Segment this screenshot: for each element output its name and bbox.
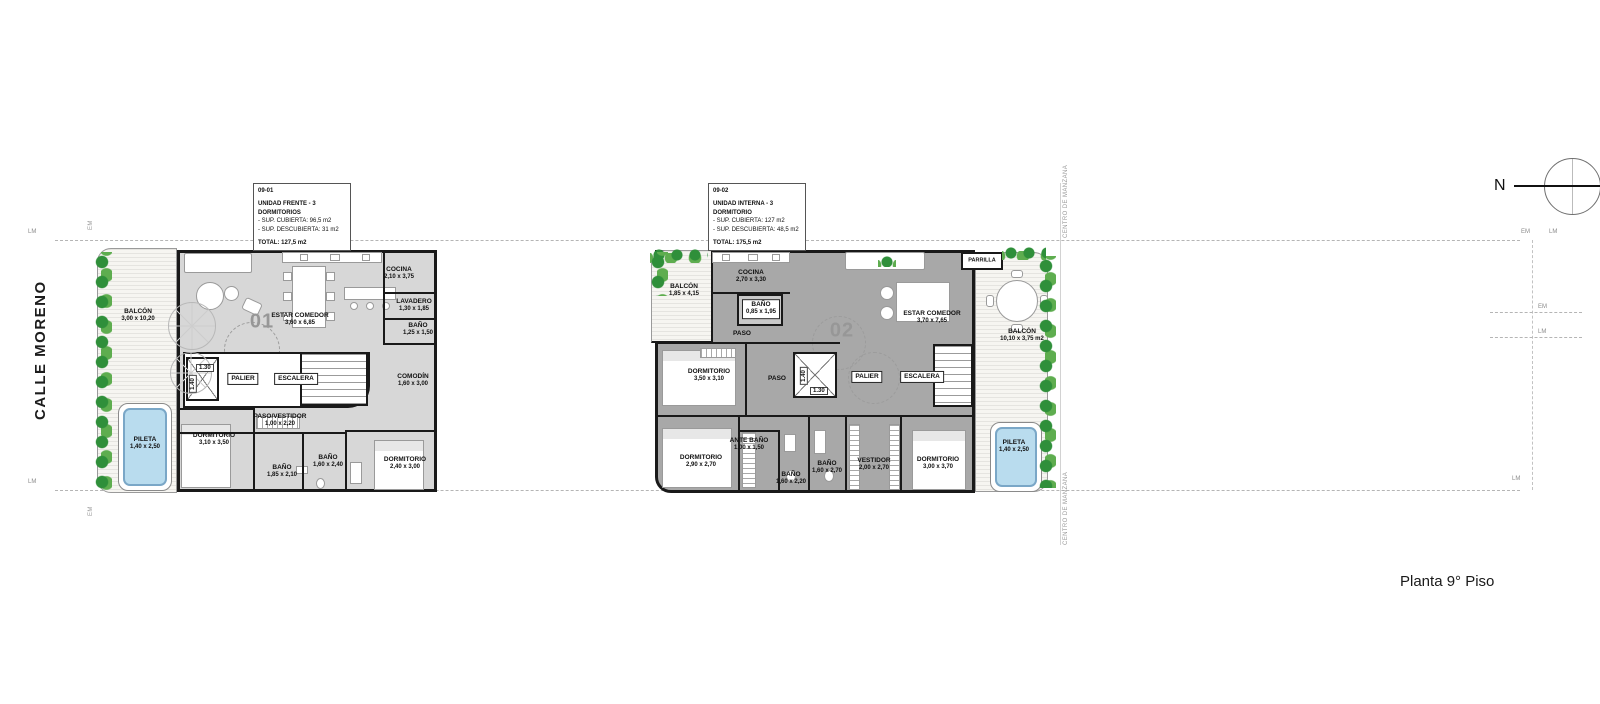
room-label-banio-sup: BAÑO 0,85 x 1,95: [742, 299, 780, 319]
room-label-banio-2: BAÑO 1,60 x 2,70: [812, 460, 842, 476]
wall: [177, 408, 255, 410]
room-name: BAÑO: [812, 460, 842, 468]
wall: [738, 430, 780, 432]
wardrobe-icon: [700, 348, 736, 358]
room-dims: 0,85 x 1,95: [746, 309, 776, 317]
lift-height-dim: 1.40: [800, 367, 808, 385]
room-label-dormitorio-2: DORMITORIO 2,40 x 3,00: [384, 456, 426, 472]
room-name: BALCÓN: [669, 283, 699, 291]
plants-strip-left: [94, 252, 116, 490]
uncovered-area: - SUP. DESCUBIERTA: 31 m2: [258, 226, 346, 234]
room-label-palier: PALIER: [227, 373, 258, 385]
room-dims: 1,25 x 1,50: [403, 330, 433, 338]
room-dims: 1,00 x 2,20: [254, 421, 307, 429]
tick-line-lm: [1490, 337, 1582, 338]
room-name: BALCÓN: [1000, 328, 1044, 336]
wall: [345, 430, 437, 432]
room-dims: 1,60 x 2,20: [776, 479, 806, 487]
wall: [900, 417, 902, 493]
room-dims: 3,00 x 10,20: [121, 316, 154, 324]
bathtub-icon: [814, 430, 826, 454]
mark-lm-right-top: LM: [1549, 229, 1557, 235]
plants-corner-left: [650, 252, 668, 296]
chair-icon: [283, 292, 292, 301]
wall: [713, 292, 790, 294]
chair-icon: [326, 272, 335, 281]
stool-icon: [366, 302, 374, 310]
covered-area: - SUP. CUBIERTA: 96,5 m2: [258, 217, 346, 225]
room-dims: 1,85 x 2,10: [267, 472, 297, 480]
room-dims: 1,00 x 1,50: [730, 445, 769, 453]
sink-icon: [300, 254, 308, 261]
room-name: BAÑO: [746, 301, 776, 309]
center-of-block-line: [1060, 183, 1061, 545]
sink-icon: [722, 254, 730, 261]
room-label-dormitorio-1: DORMITORIO 3,10 x 3,50: [193, 432, 235, 448]
room-name: BAÑO: [776, 471, 806, 479]
wall: [345, 430, 347, 492]
room-dims: 1,85 x 4,15: [669, 291, 699, 299]
room-label-dormitorio-2: DORMITORIO 2,90 x 2,70: [680, 454, 722, 470]
room-name: COCINA: [384, 266, 414, 274]
wall: [655, 342, 840, 344]
center-of-block-label-bottom: CENTRO DE MANZANA: [1063, 472, 1069, 545]
room-dims: 3,60 x 6,85: [271, 320, 328, 328]
lift-height-dim: 1.40: [189, 375, 197, 393]
room-dims: 1,30 x 1,85: [396, 306, 432, 314]
stool-icon: [350, 302, 358, 310]
unit02-pool: [990, 422, 1042, 492]
chair-icon: [880, 286, 894, 300]
room-dims: 2,00 x 2,70: [857, 465, 890, 473]
tree-icon: [168, 302, 216, 350]
center-of-block-label-top: CENTRO DE MANZANA: [1063, 165, 1069, 238]
boundary-line-right: [1532, 240, 1533, 490]
room-name: DORMITORIO: [384, 456, 426, 464]
wall: [302, 432, 304, 492]
chair-icon: [326, 292, 335, 301]
room-label-paso-2: PASO: [768, 375, 786, 383]
wall: [745, 344, 747, 415]
tick-line-em: [1490, 312, 1582, 313]
chair-icon: [283, 272, 292, 281]
wall: [383, 318, 437, 320]
room-dims: 10,10 x 3,75 m2: [1000, 336, 1044, 344]
chair-icon: [1011, 270, 1023, 278]
room-label-estar-comedor: ESTAR COMEDOR 3,60 x 6,85: [271, 312, 328, 328]
room-name: PILETA: [130, 436, 160, 444]
room-dims: 2,10 x 3,75: [384, 274, 414, 282]
wall: [738, 417, 740, 493]
room-label-dormitorio-3: DORMITORIO 3,00 x 3,70: [917, 456, 959, 472]
north-label: N: [1494, 177, 1506, 195]
room-dims: 3,10 x 3,50: [193, 440, 235, 448]
wall: [845, 417, 847, 493]
room-name: BAÑO: [313, 454, 343, 462]
room-label-balcon-1: BALCÓN 1,85 x 4,15: [669, 283, 699, 299]
toilet-icon: [316, 478, 325, 489]
wall: [383, 250, 385, 345]
room-label-dormitorio-1: DORMITORIO 3,50 x 3,10: [688, 368, 730, 384]
room-label-pileta: PILETA 1,40 x 2,50: [999, 439, 1029, 455]
chair-icon: [986, 295, 994, 307]
stove-icon: [748, 254, 758, 261]
room-label-banio-1: BAÑO 1,60 x 2,20: [776, 471, 806, 487]
room-name: VESTIDOR: [857, 457, 890, 465]
uncovered-area: - SUP. DESCUBIERTA: 48,5 m2: [713, 226, 801, 234]
mark-lm-left-bottom: LM: [28, 479, 36, 485]
room-label-banio-sup: BAÑO 1,25 x 1,50: [403, 322, 433, 338]
unit-type: UNIDAD FRENTE - 3 DORMITORIOS: [258, 200, 346, 217]
room-name: DORMITORIO: [193, 432, 235, 440]
total-area: TOTAL: 175,5 m2: [713, 239, 801, 247]
unit-code: 09-02: [713, 187, 801, 195]
room-name: LAVADERO: [396, 298, 432, 306]
covered-area: - SUP. CUBIERTA: 127 m2: [713, 217, 801, 225]
room-label-pileta: PILETA 1,40 x 2,50: [130, 436, 160, 452]
room-name: BAÑO: [267, 464, 297, 472]
room-label-parrilla: PARRILLA: [968, 258, 995, 265]
room-name: BAÑO: [403, 322, 433, 330]
room-dims: 2,40 x 3,00: [384, 464, 426, 472]
page-title: Planta 9° Piso: [1400, 573, 1494, 590]
wall: [383, 292, 437, 294]
plant-pot-icon: [878, 255, 896, 267]
room-name: DORMITORIO: [917, 456, 959, 464]
mark-em-vertical-top: EM: [88, 220, 94, 230]
street-label: CALLE MORENO: [32, 280, 49, 420]
stove-icon: [330, 254, 340, 261]
room-label-escalera: ESCALERA: [900, 371, 944, 383]
room-label-paso-vestidor: PASO/VESTIDOR 1,00 x 2,20: [254, 413, 307, 429]
room-label-banio-2: BAÑO 1,60 x 2,40: [313, 454, 343, 470]
room-label-palier: PALIER: [851, 371, 882, 383]
wall: [655, 415, 975, 417]
room-dims: 2,70 x 3,30: [736, 277, 766, 285]
chair-icon: [880, 306, 894, 320]
sink-icon: [784, 434, 796, 452]
room-dims: 3,50 x 3,10: [688, 376, 730, 384]
room-label-balcon: BALCÓN 3,00 x 10,20: [121, 308, 154, 324]
room-name: ESTAR COMEDOR: [903, 310, 960, 318]
mark-em-right-mid: EM: [1538, 304, 1547, 310]
mark-em-vertical-bottom: EM: [88, 506, 94, 516]
unit-code: 09-01: [258, 187, 346, 195]
room-label-paso-1: PASO: [733, 330, 751, 338]
room-label-comodin: COMODÍN 1,60 x 3,00: [397, 373, 428, 389]
room-label-banio-1: BAÑO 1,85 x 2,10: [267, 464, 297, 480]
room-label-lavadero: LAVADERO 1,30 x 1,85: [396, 298, 432, 314]
north-arrow-line: [1514, 185, 1600, 187]
total-area: TOTAL: 127,5 m2: [258, 239, 346, 247]
room-name: DORMITORIO: [680, 454, 722, 462]
appliance-icon: [772, 254, 780, 261]
room-dims: 3,00 x 3,70: [917, 464, 959, 472]
sofa-icon: [184, 253, 252, 273]
mark-lm-left-top: LM: [28, 229, 36, 235]
plants-strip-right: [1038, 256, 1058, 488]
room-name: ESTAR COMEDOR: [271, 312, 328, 320]
room-label-estar-comedor: ESTAR COMEDOR 3,70 x 7,65: [903, 310, 960, 326]
appliance-icon: [362, 254, 370, 261]
room-label-cocina: COCINA 2,10 x 3,75: [384, 266, 414, 282]
lift-width-dim: 1.30: [196, 364, 214, 372]
room-dims: 1,60 x 3,00: [397, 381, 428, 389]
room-name: COMODÍN: [397, 373, 428, 381]
room-dims: 1,60 x 2,40: [313, 462, 343, 470]
unit02-number: 02: [830, 320, 854, 343]
room-label-balcon-2: BALCÓN 10,10 x 3,75 m2: [1000, 328, 1044, 344]
room-dims: 3,70 x 7,65: [903, 318, 960, 326]
room-label-escalera: ESCALERA: [274, 373, 318, 385]
room-dims: 1,40 x 2,50: [999, 447, 1029, 455]
room-dims: 2,90 x 2,70: [680, 462, 722, 470]
room-label-cocina: COCINA 2,70 x 3,30: [736, 269, 766, 285]
wall: [808, 417, 810, 493]
floor-plan-sheet: LM LM EM LM EM LM LM EM EM CENTRO DE MAN…: [0, 0, 1600, 704]
room-dims: 1,60 x 2,70: [812, 468, 842, 476]
room-name: PASO/VESTIDOR: [254, 413, 307, 421]
shower-icon: [350, 462, 362, 484]
unit-type: UNIDAD INTERNA - 3 DORMITORIO: [713, 200, 801, 217]
wardrobe-icon: [889, 424, 900, 490]
room-name: BALCÓN: [121, 308, 154, 316]
side-table-icon: [224, 286, 239, 301]
round-table-icon: [996, 280, 1038, 322]
room-label-ante-banio: ANTE BAÑO 1,00 x 1,50: [730, 437, 769, 453]
info-box-unit-02: 09-02 UNIDAD INTERNA - 3 DORMITORIO - SU…: [708, 183, 806, 251]
room-name: PILETA: [999, 439, 1029, 447]
room-name: COCINA: [736, 269, 766, 277]
lift-width-dim: 1.30: [810, 387, 828, 395]
mark-lm-right-bottom: LM: [1512, 476, 1520, 482]
room-name: ANTE BAÑO: [730, 437, 769, 445]
plants-corner-top-right: [1002, 246, 1046, 260]
room-name: DORMITORIO: [688, 368, 730, 376]
mark-em-right-top: EM: [1521, 229, 1530, 235]
info-box-unit-01: 09-01 UNIDAD FRENTE - 3 DORMITORIOS - SU…: [253, 183, 351, 251]
room-label-vestidor: VESTIDOR 2,00 x 2,70: [857, 457, 890, 473]
wall: [383, 343, 437, 345]
mark-lm-right-mid: LM: [1538, 329, 1546, 335]
room-dims: 1,40 x 2,50: [130, 444, 160, 452]
